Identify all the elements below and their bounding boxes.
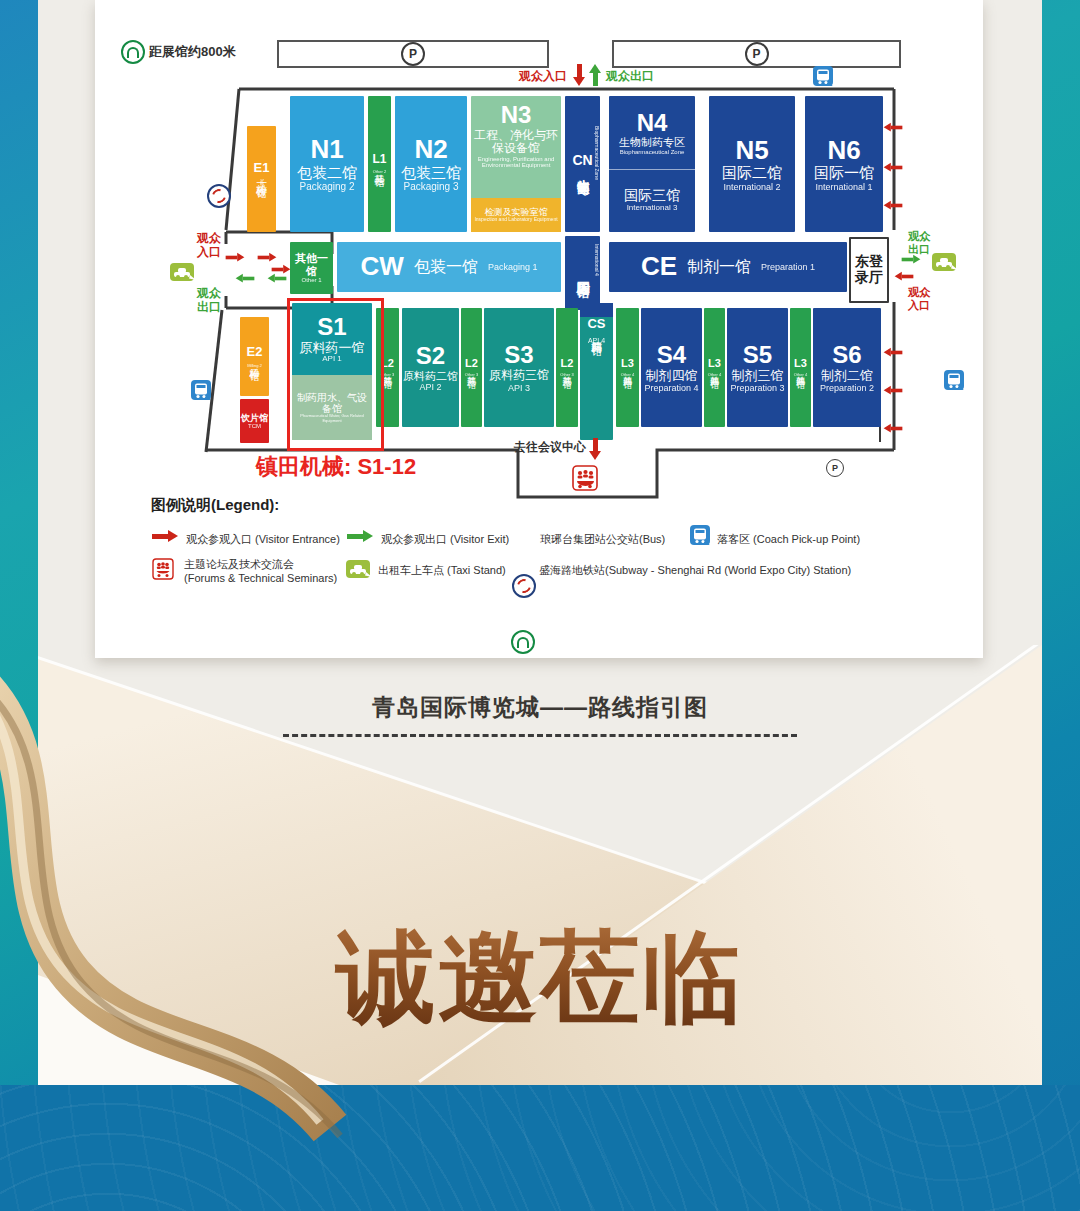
- invitation-poster: P P P 距展馆约800米 观众入口 观众出口 观众入口 观众出口: [0, 0, 1080, 1211]
- invitation-headline: 诚邀莅临: [38, 912, 1042, 1047]
